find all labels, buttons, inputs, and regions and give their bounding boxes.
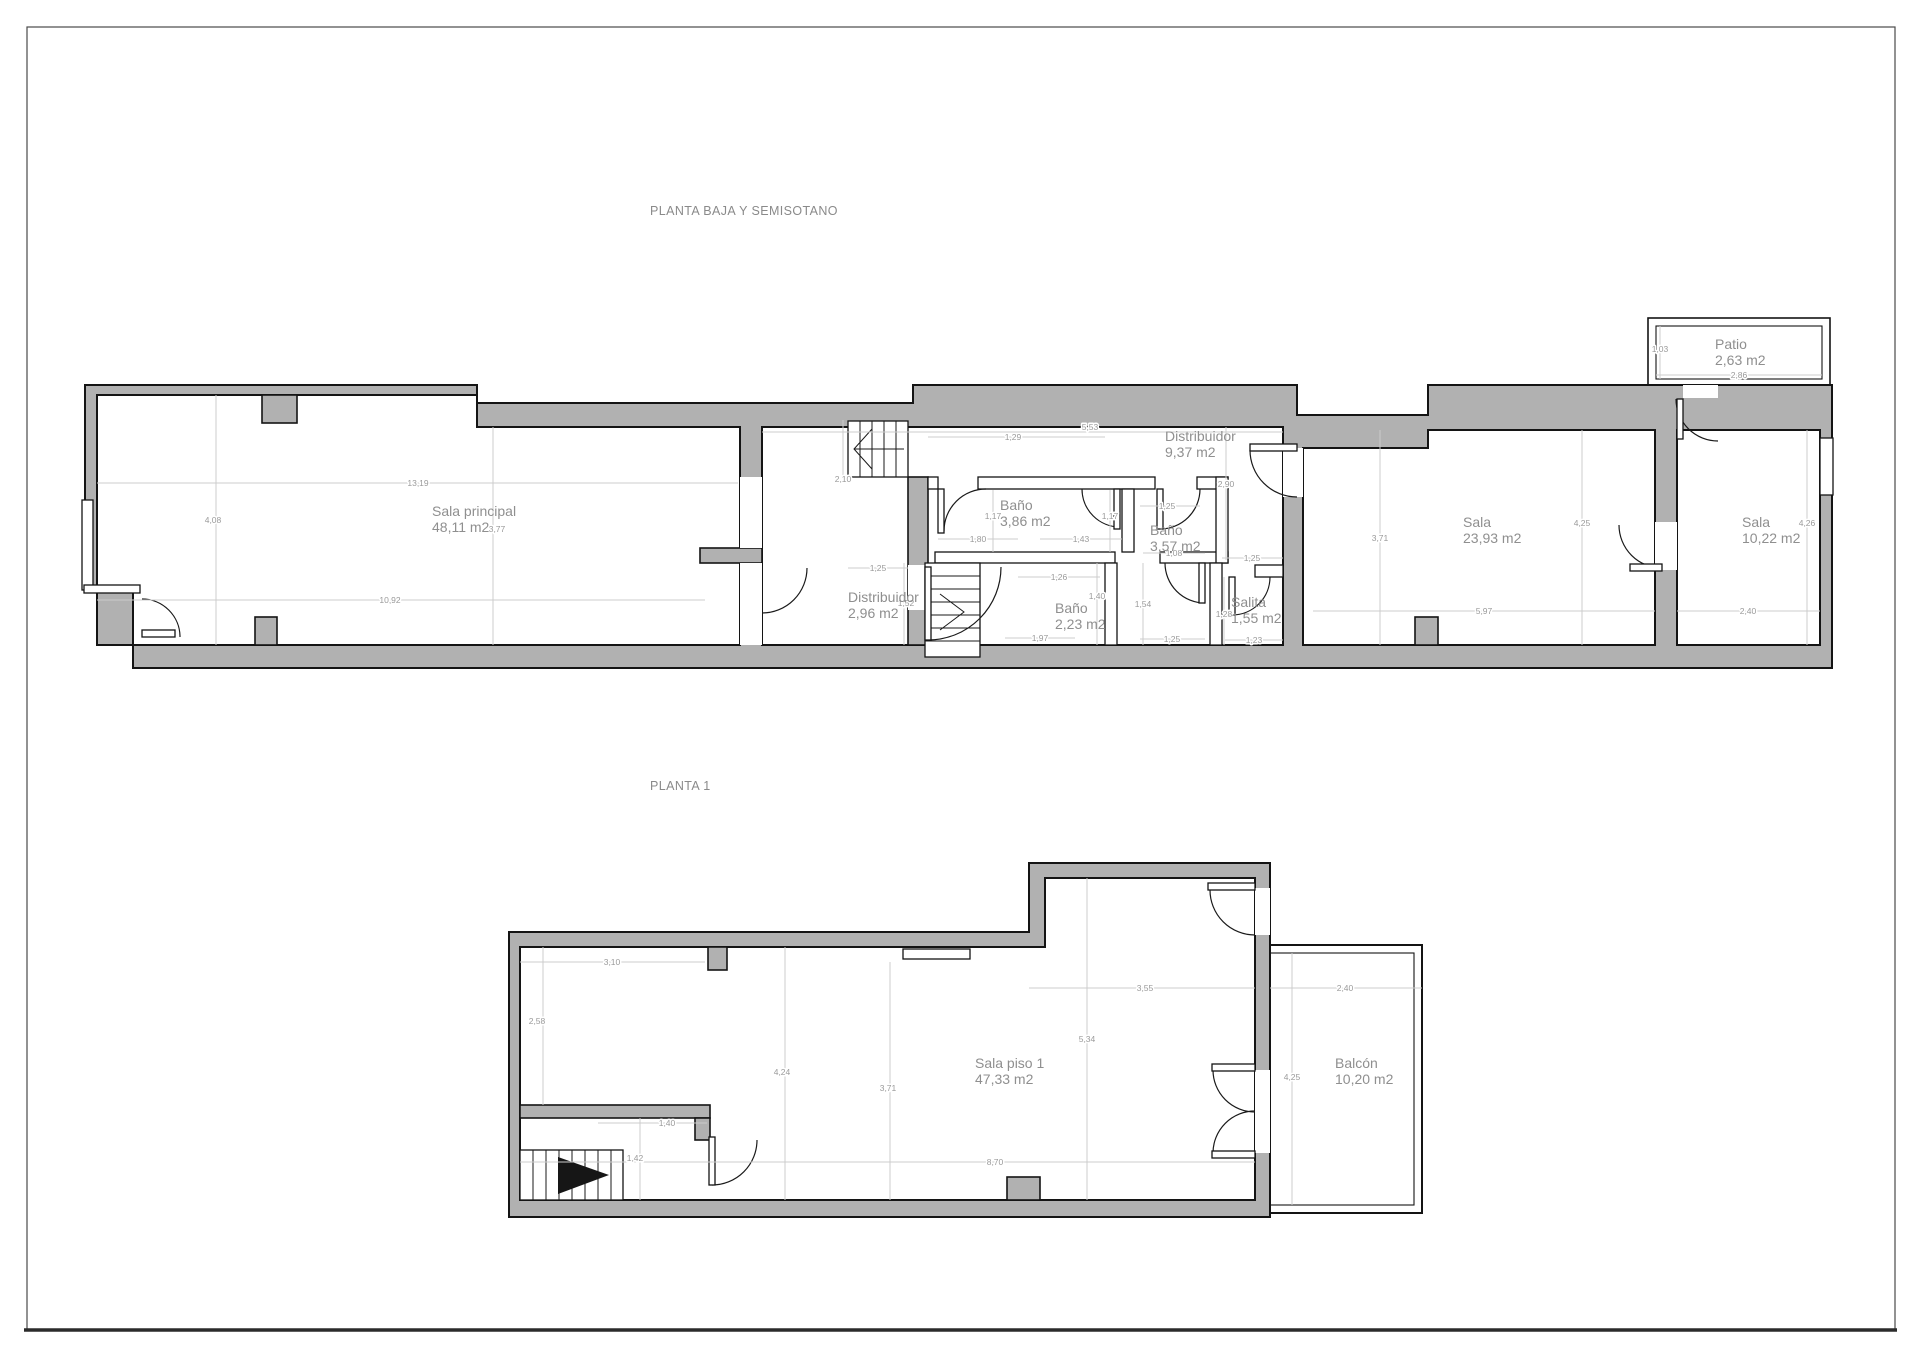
dim-label: 3,55 [1137,983,1154,993]
room-label-bano-386: Baño [1000,497,1033,513]
room-area-sala-2393: 23,93 m2 [1463,530,1522,546]
room-label-sala-1022: Sala [1742,514,1770,530]
plan1: 13,19 4,08 3,77 10,92 2,10 1,29 5,53 2,9… [82,318,1833,668]
room-area-balcon: 10,20 m2 [1335,1071,1394,1087]
room-area-patio: 2,63 m2 [1715,352,1766,368]
room-label-bano-223: Baño [1055,600,1088,616]
room-label-distribuidor-296: Distribuidor [848,589,919,605]
dim-label: 5,34 [1079,1034,1096,1044]
dim-label: 1,25 [1164,634,1181,644]
plan2: 3,10 2,58 4,24 3,71 1,40 1,42 3,55 5,34 … [509,863,1422,1217]
room-area-bano-357: 3,57 m2 [1150,538,1201,554]
window [1820,438,1833,495]
dim-label: 3,71 [1372,533,1389,543]
dim-label: 1,43 [1073,534,1090,544]
dim-label: 1,42 [627,1153,644,1163]
dim-label: 2,10 [835,474,852,484]
room-label-bano-357: Baño [1150,522,1183,538]
dim-label: 2,58 [529,1016,546,1026]
room-area-salita: 1,55 m2 [1231,610,1282,626]
dim-label: 1,25 [870,563,887,573]
dim-label: 3,77 [489,524,506,534]
dim-label: 1,29 [1005,432,1022,442]
dim-label: 1,25 [1159,501,1176,511]
dim-label: 2,40 [1337,983,1354,993]
dim-label: 1,25 [1244,553,1261,563]
drawing-border [27,27,1895,1330]
dim-label: 1,54 [1135,599,1152,609]
staircase-lower [925,563,980,657]
plan1-title: PLANTA BAJA Y SEMISOTANO [650,204,838,218]
dim-label: 1,97 [1032,633,1049,643]
room-area-distribuidor-296: 2,96 m2 [848,605,899,621]
dim-label: 1,40 [1089,591,1106,601]
room-label-sala-principal: Sala principal [432,503,516,519]
floorplan-sheet: PLANTA BAJA Y SEMISOTANO PLANTA 1 [0,0,1920,1357]
dim-label: 1,17 [1102,511,1119,521]
window [82,500,93,590]
floorplan-drawing: PLANTA BAJA Y SEMISOTANO PLANTA 1 [0,0,1920,1357]
dim-label: 4,24 [774,1067,791,1077]
room-label-sala-piso-1: Sala piso 1 [975,1055,1044,1071]
dim-label: 1,03 [1652,344,1669,354]
room-label-salita: Salita [1231,594,1266,610]
dim-label: 3,71 [880,1083,897,1093]
room-area-sala-piso-1: 47,33 m2 [975,1071,1034,1087]
dim-label: 1,40 [659,1118,676,1128]
dim-label: 5,53 [1082,422,1099,432]
room-label-distribuidor-937: Distribuidor [1165,428,1236,444]
dim-label: 4,25 [1284,1072,1301,1082]
window [903,949,970,959]
dim-label: 1,26 [1051,572,1068,582]
dim-label: 5,97 [1476,606,1493,616]
room-area-sala-1022: 10,22 m2 [1742,530,1801,546]
staircase-plan2 [520,1150,623,1200]
dim-label: 4,25 [1574,518,1591,528]
dim-label: 2,40 [1740,606,1757,616]
dim-label: 4,26 [1799,518,1816,528]
room-label-sala-2393: Sala [1463,514,1491,530]
dim-label: 3,10 [604,957,621,967]
dim-label: 2,86 [1731,370,1748,380]
dim-label: 1,23 [1246,635,1263,645]
dim-label: 8,70 [987,1157,1004,1167]
staircase-upper [848,421,908,477]
dim-label: 1,80 [970,534,987,544]
window-sill [84,585,140,593]
room-area-bano-386: 3,86 m2 [1000,513,1051,529]
dim-label: 4,08 [205,515,222,525]
dim-label: 2,90 [1218,479,1235,489]
room-label-balcon: Balcón [1335,1055,1378,1071]
dim-label: 10,92 [379,595,401,605]
room-area-sala-principal: 48,11 m2 [432,519,490,535]
dim-label: 13,19 [407,478,429,488]
room-area-distribuidor-937: 9,37 m2 [1165,444,1216,460]
room-label-patio: Patio [1715,336,1747,352]
door-leaves-2 [709,883,1255,1185]
plan2-title: PLANTA 1 [650,779,711,793]
room-area-bano-223: 2,23 m2 [1055,616,1106,632]
